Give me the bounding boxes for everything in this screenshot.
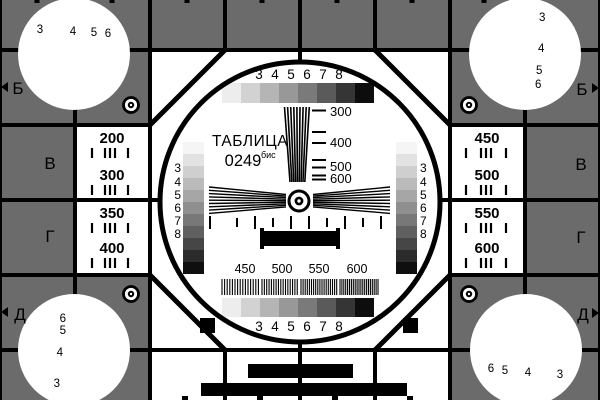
svg-text:4: 4 bbox=[271, 319, 279, 334]
svg-text:6: 6 bbox=[488, 363, 494, 375]
svg-text:3: 3 bbox=[37, 24, 43, 36]
vertical-grayscale-right bbox=[396, 142, 417, 274]
svg-text:500: 500 bbox=[272, 262, 293, 276]
svg-text:3: 3 bbox=[255, 319, 263, 334]
svg-text:6: 6 bbox=[420, 201, 427, 215]
black-bar-short bbox=[248, 364, 353, 378]
edge-letter: В bbox=[575, 155, 586, 174]
title-word: ТАБЛИЦА bbox=[212, 133, 288, 150]
edge-letter: В bbox=[44, 154, 55, 173]
svg-text:5: 5 bbox=[174, 188, 181, 202]
wedge-scale-labels: 300 400 500 600 bbox=[330, 104, 352, 186]
svg-text:5: 5 bbox=[287, 67, 295, 82]
svg-text:3: 3 bbox=[539, 12, 545, 24]
svg-text:6: 6 bbox=[105, 28, 111, 40]
svg-text:6: 6 bbox=[303, 319, 311, 334]
grayscale-staircase-top bbox=[222, 83, 374, 103]
svg-text:4: 4 bbox=[271, 67, 279, 82]
svg-text:550: 550 bbox=[474, 205, 499, 222]
svg-text:300: 300 bbox=[99, 167, 124, 184]
svg-text:7: 7 bbox=[319, 67, 327, 82]
svg-text:4: 4 bbox=[57, 347, 64, 359]
edge-letter: Г bbox=[45, 227, 54, 246]
edge-letter: Д bbox=[14, 305, 26, 324]
svg-text:3: 3 bbox=[174, 161, 181, 175]
black-bar-long bbox=[201, 383, 407, 396]
svg-text:8: 8 bbox=[174, 227, 181, 241]
bullseye-icon bbox=[124, 98, 139, 113]
svg-text:6: 6 bbox=[174, 201, 181, 215]
svg-text:7: 7 bbox=[319, 319, 327, 334]
svg-text:7: 7 bbox=[174, 214, 181, 228]
svg-text:5: 5 bbox=[536, 65, 542, 77]
corner-circle-top-right bbox=[469, 0, 581, 110]
title-suffix: бис bbox=[261, 150, 276, 160]
edge-letter: Б bbox=[576, 80, 587, 99]
tv-test-card: 34 56 78 300 400 500 600 ТАБЛИЦА 0249 би… bbox=[0, 0, 600, 400]
svg-text:4: 4 bbox=[538, 43, 545, 55]
svg-text:7: 7 bbox=[420, 214, 427, 228]
right-strip-labels: 34 56 78 bbox=[420, 161, 427, 241]
svg-text:6: 6 bbox=[60, 313, 66, 325]
svg-text:3: 3 bbox=[557, 369, 563, 381]
svg-text:450: 450 bbox=[474, 130, 499, 147]
svg-text:3: 3 bbox=[420, 161, 427, 175]
svg-text:400: 400 bbox=[330, 135, 352, 150]
reference-black-bar bbox=[260, 228, 340, 249]
edge-letter: Д bbox=[577, 305, 589, 324]
left-strip-labels: 34 56 78 bbox=[174, 161, 181, 241]
svg-text:4: 4 bbox=[420, 175, 427, 189]
svg-text:200: 200 bbox=[99, 130, 124, 147]
svg-text:6: 6 bbox=[535, 79, 541, 91]
svg-text:5: 5 bbox=[420, 188, 427, 202]
svg-text:5: 5 bbox=[91, 27, 97, 39]
svg-text:4: 4 bbox=[70, 26, 77, 38]
svg-text:5: 5 bbox=[287, 319, 295, 334]
edge-letter: Г bbox=[576, 228, 585, 247]
svg-text:500: 500 bbox=[474, 167, 499, 184]
svg-text:600: 600 bbox=[347, 262, 368, 276]
vertical-grayscale-left bbox=[183, 142, 204, 274]
svg-text:600: 600 bbox=[330, 171, 352, 186]
edge-letter: Б bbox=[12, 79, 23, 98]
svg-text:4: 4 bbox=[174, 175, 181, 189]
bullseye-icon bbox=[124, 287, 139, 302]
svg-text:400: 400 bbox=[99, 240, 124, 257]
svg-text:8: 8 bbox=[335, 319, 343, 334]
svg-text:350: 350 bbox=[99, 205, 124, 222]
svg-text:4: 4 bbox=[525, 367, 532, 379]
svg-text:550: 550 bbox=[309, 262, 330, 276]
corner-circle-top-left bbox=[18, 0, 130, 110]
svg-text:600: 600 bbox=[474, 240, 499, 257]
svg-text:3: 3 bbox=[54, 378, 60, 390]
test-card-canvas: 34 56 78 300 400 500 600 ТАБЛИЦА 0249 би… bbox=[0, 0, 600, 400]
grayscale-staircase-bottom bbox=[222, 298, 374, 317]
svg-text:8: 8 bbox=[420, 227, 427, 241]
svg-text:5: 5 bbox=[502, 365, 508, 377]
bullseye-icon bbox=[462, 287, 477, 302]
title-number: 0249 bbox=[225, 152, 262, 170]
bullseye-icon bbox=[462, 98, 477, 113]
svg-text:5: 5 bbox=[60, 325, 66, 337]
svg-text:6: 6 bbox=[303, 67, 311, 82]
bullseye-icon bbox=[289, 191, 309, 211]
svg-text:450: 450 bbox=[235, 262, 256, 276]
svg-text:300: 300 bbox=[330, 104, 352, 119]
